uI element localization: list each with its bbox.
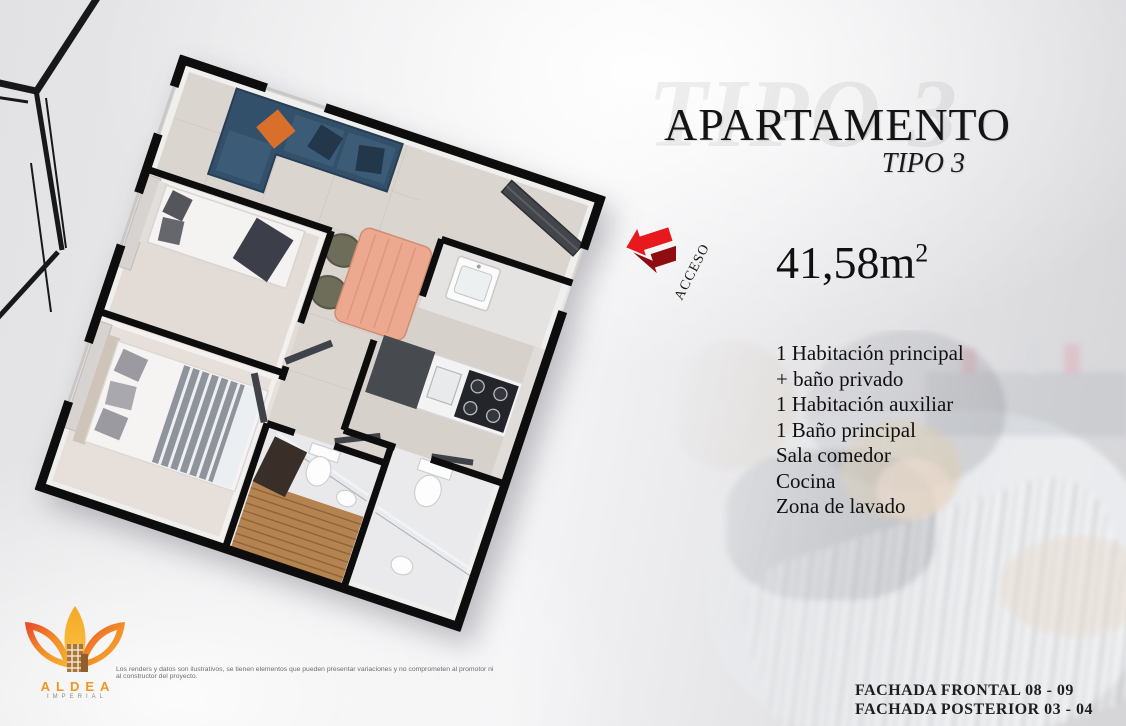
feature-item: Cocina xyxy=(776,469,964,495)
fachada-posterior: FACHADA POSTERIOR 03 - 04 xyxy=(855,700,1093,719)
photo-candle-shape xyxy=(1026,344,1040,374)
navy-pillow xyxy=(355,145,385,175)
flyer-page: TIPO 3 xyxy=(0,0,1126,726)
brand-logo: ALDEA IMPERIAL xyxy=(10,604,140,700)
page-title: APARTAMENTO xyxy=(655,98,1020,151)
logo-building-icon xyxy=(67,644,88,672)
logo-tagline: IMPERIAL xyxy=(10,694,140,700)
disclaimer-text: Los renders y datos son ilustrativos, se… xyxy=(116,666,496,680)
feature-item: + baño privado xyxy=(776,367,964,393)
feature-list: 1 Habitación principal + baño privado 1 … xyxy=(776,341,964,520)
logo-left-petal xyxy=(25,622,71,668)
floor-plan xyxy=(28,22,698,672)
fachada-frontal: FACHADA FRONTAL 08 - 09 xyxy=(855,681,1093,700)
feature-item: 1 Habitación principal xyxy=(776,341,964,367)
fachada-block: FACHADA FRONTAL 08 - 09 FACHADA POSTERIO… xyxy=(855,681,1093,719)
feature-item: 1 Habitación auxiliar xyxy=(776,392,964,418)
logo-name: ALDEA xyxy=(10,679,140,694)
feature-item: Zona de lavado xyxy=(776,494,964,520)
area-superscript: 2 xyxy=(915,239,928,268)
feature-item: Sala comedor xyxy=(776,443,964,469)
page-subtitle: TIPO 3 xyxy=(655,148,965,180)
access-arrow-icon xyxy=(614,218,676,284)
feature-item: 1 Baño principal xyxy=(776,418,964,444)
photo-candle-shape xyxy=(1064,344,1080,374)
area-value: 41,58m2 xyxy=(776,236,928,289)
